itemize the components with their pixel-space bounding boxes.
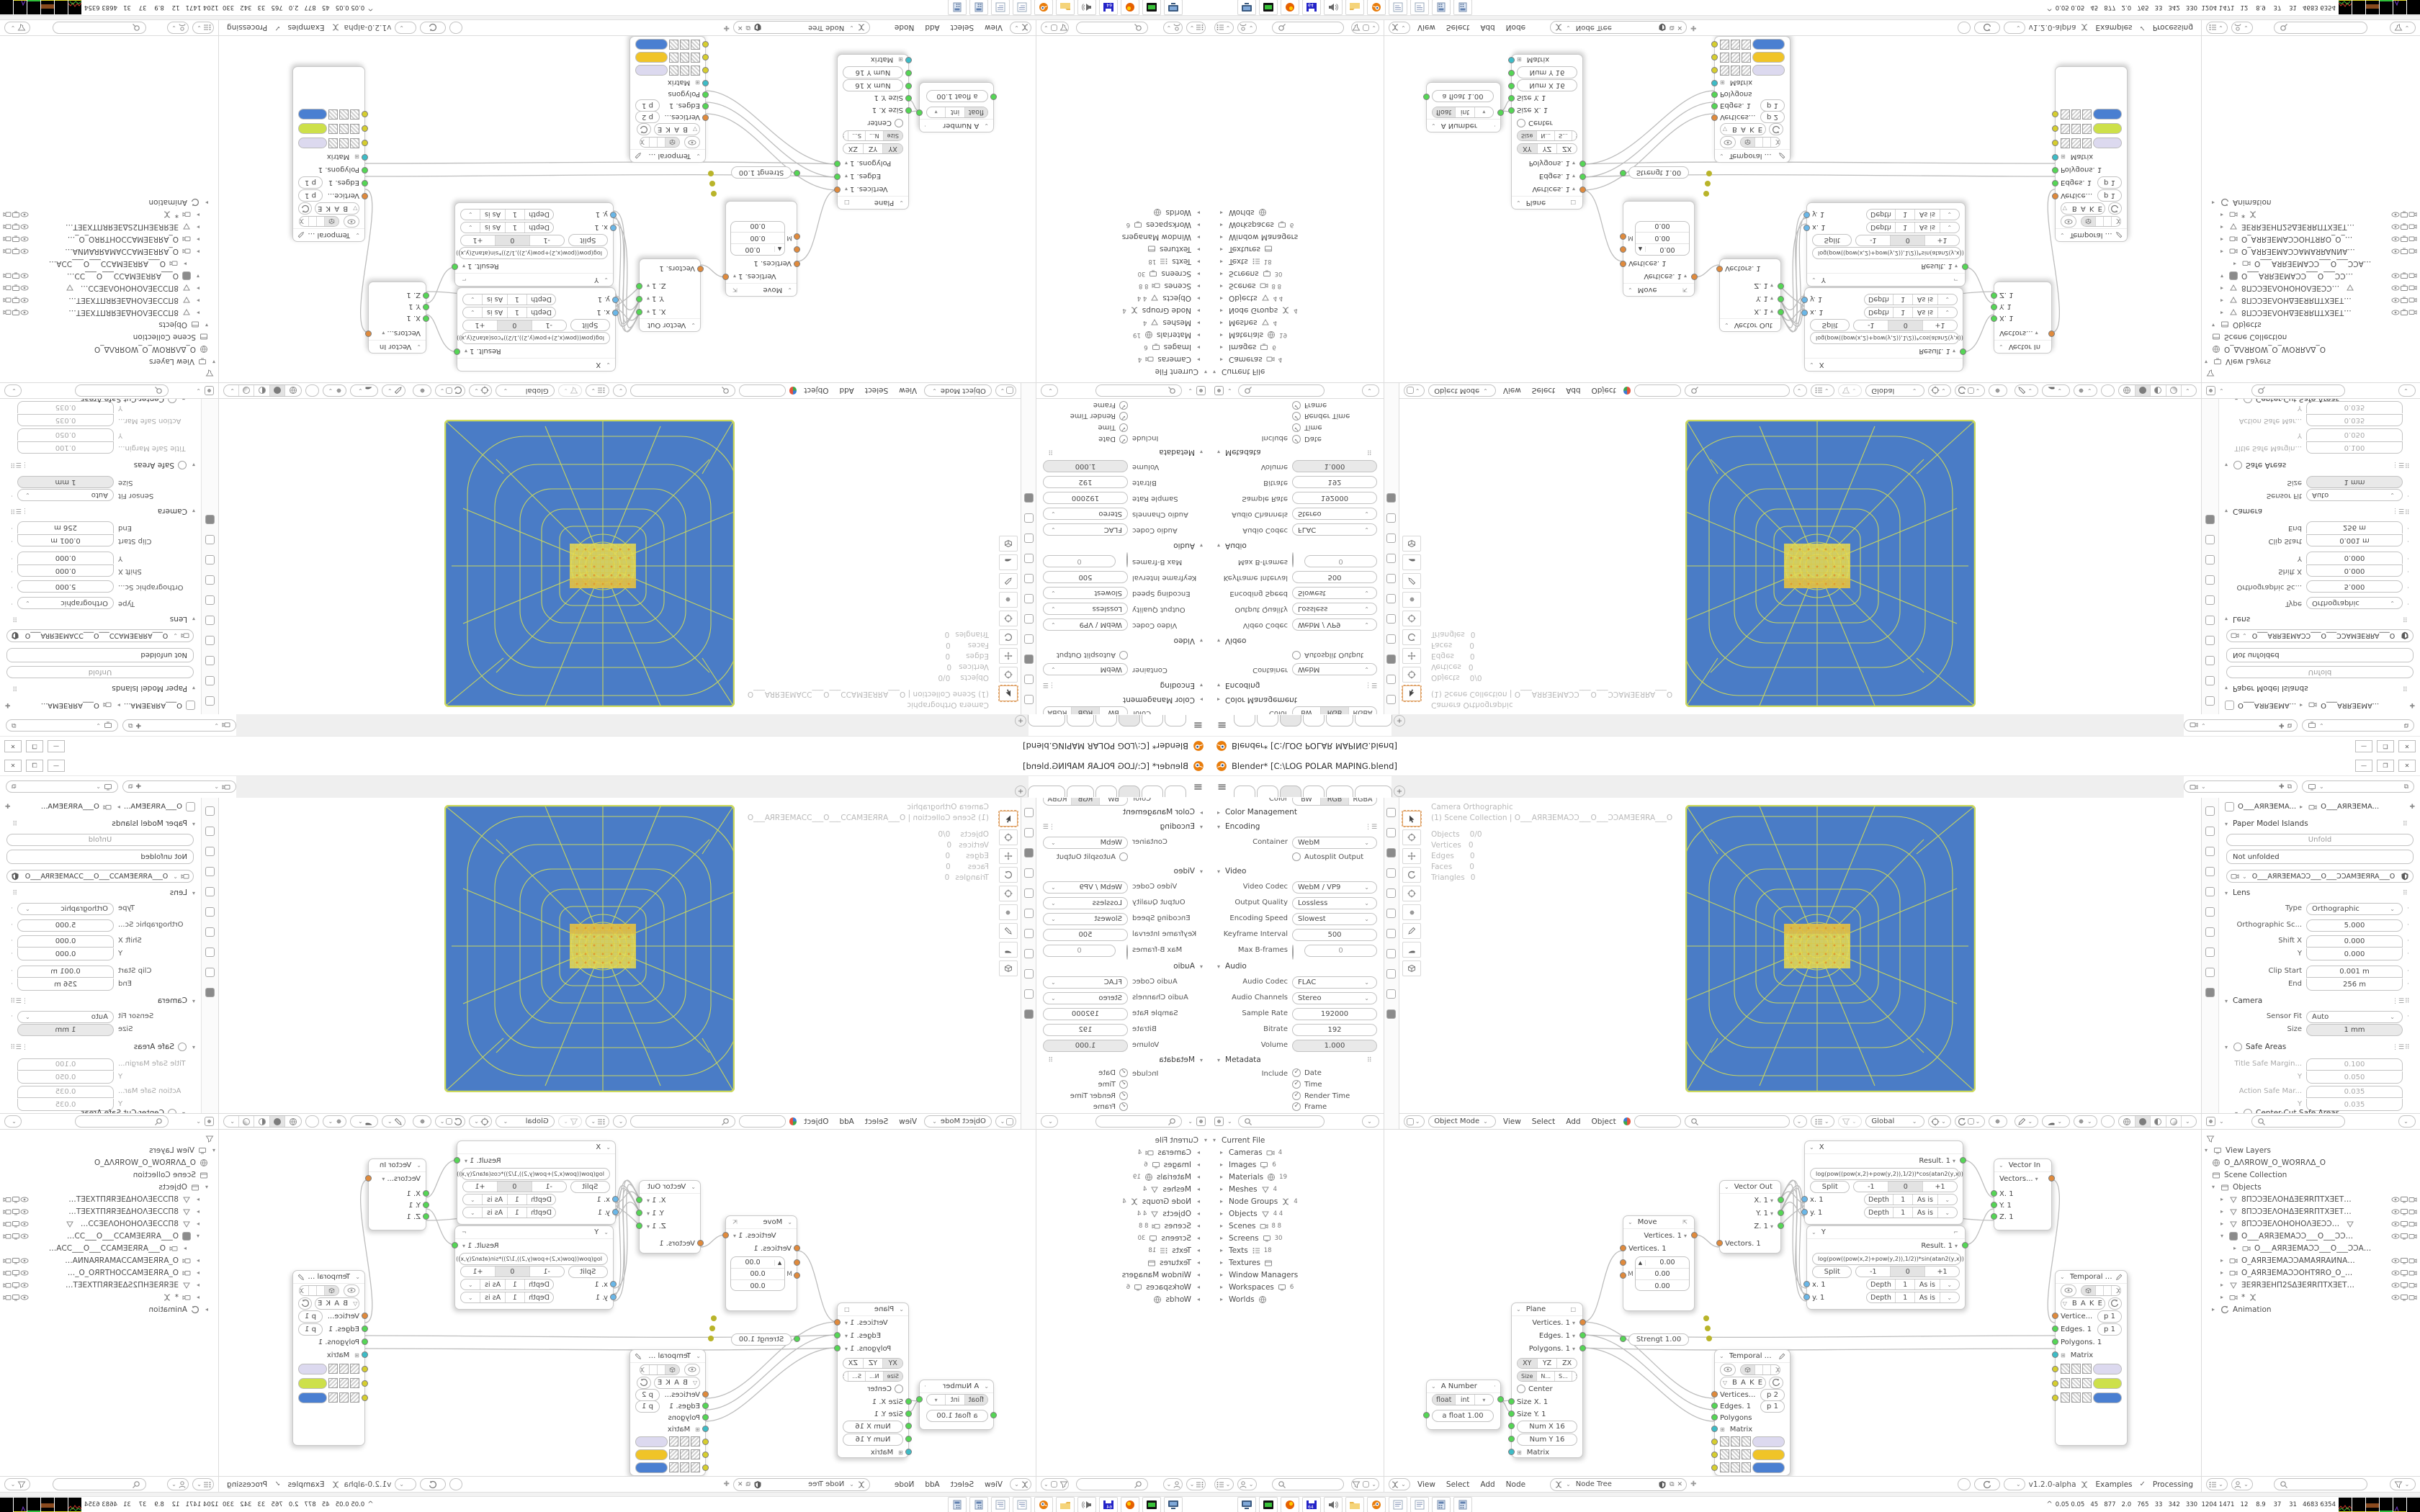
workspace-tab[interactable] [1234,786,1255,797]
panel-lens[interactable]: ▾Lens [2225,615,2250,624]
tree-textures[interactable]: ▸Textures [1213,243,1381,256]
node-plane[interactable]: ⌄Plane□ Vertices. 1▾ Edges. 1▾ Polygons.… [1511,54,1583,210]
formula-y-result-socket[interactable] [452,264,458,270]
plane-num-y-field[interactable]: Num Y 16 [843,67,903,79]
move-vector-field[interactable]: ▲0.00 0.00 0.00 [1635,1256,1690,1291]
vector-out-x-socket[interactable] [636,1197,642,1203]
new-tree-icon[interactable]: ⧉ [1670,1481,1674,1488]
split-button[interactable]: Split [568,1266,608,1278]
tab-scene-icon[interactable] [1024,614,1034,624]
transform-orientation-select[interactable]: Global⌄ [496,1115,555,1128]
number-out-socket[interactable] [916,1396,923,1403]
tree-object-row[interactable]: ▸8ΠƆƆƎEΛOHΔƎEЯRΠTXƎETOTƎEXTΠЯ8 [2205,307,2417,319]
properties-search[interactable] [1238,1115,1325,1128]
edge-color-socket[interactable] [362,125,368,132]
workspace-tab-active[interactable] [1280,786,1301,797]
breadcrumb-object[interactable]: O___AЯRƎEMA... [124,803,182,811]
snapping-button[interactable]: ⌄ [1928,384,1950,397]
menu-add[interactable]: Add [1562,387,1584,395]
plane-edges-out-socket[interactable] [834,174,841,180]
close-button[interactable]: ✕ [4,740,22,752]
fake-user-shield-icon[interactable] [2401,631,2409,640]
tab-tool-icon[interactable] [2205,806,2215,816]
action-safe-x-field[interactable]: 0.035 [17,1086,114,1098]
face-color-socket[interactable] [702,1464,709,1471]
taskbar-app-floppy-64[interactable]: 64 [1302,1497,1321,1512]
row-toggles[interactable] [3,1293,29,1302]
tree-window-managers[interactable]: ▸Window Managers [1213,231,1381,243]
menu-view[interactable]: View [981,1480,1006,1489]
taskbar-app-folder[interactable] [1056,1497,1075,1512]
vertex-color-swatch[interactable] [298,138,327,149]
menu-node[interactable]: Node [1502,1480,1529,1489]
row-toggles[interactable] [2391,223,2417,232]
tool-annotate[interactable] [999,923,1018,939]
fake-user-shield-icon[interactable] [753,24,762,32]
sensor-size-field[interactable]: 1 mm [17,1024,114,1036]
vector-in-y-socket[interactable] [1991,1202,1997,1208]
tree-object-row[interactable]: ▸O_AЯRƎEMAƆƆOHTЯRO_O_OЯRTHƆƆƆ [2205,1266,2417,1279]
tab-object-icon[interactable] [1024,929,1034,938]
plane-matrix-socket[interactable] [905,1449,912,1455]
workspace-tab[interactable] [1165,786,1186,797]
tree-scene-collection[interactable]: Scene Collection [3,331,215,343]
tab-view-layer-icon[interactable] [1024,634,1034,644]
processing-toggle[interactable]: Processing [223,24,271,32]
outliner-type-button[interactable]: ⌄ [192,22,214,34]
tab-view-layer-icon[interactable] [205,867,215,876]
include-frame-checkbox[interactable] [1119,1102,1128,1111]
vector-in-out-socket[interactable] [2048,330,2055,337]
formula-y-expression[interactable]: log(pow((pow(x,2)+pow(y,2)),1/2))*sin(at… [1812,1253,1961,1265]
tree-world[interactable]: O_ΔΛЯROW_O_WOЯRΛΔ_O [3,343,215,356]
audio-codec-select[interactable]: FLAC⌄ [1043,523,1128,536]
vertex-color-swatch[interactable] [1752,1436,1785,1447]
tree-animation[interactable]: ▸Animation [2205,1303,2417,1315]
row-toggles[interactable] [3,248,29,256]
panel-video[interactable]: ▾Video [1174,636,1203,645]
shading-wireframe-icon[interactable] [284,1116,301,1127]
clip-end-field[interactable]: 256 m [2306,978,2403,991]
animate-dot[interactable]: · [2407,537,2409,544]
unlink-tree-icon[interactable]: ✕ [1677,24,1683,32]
menu-hamburger-icon[interactable]: ≡ [1193,780,1203,793]
tree-meshes[interactable]: ▸Meshes4 [1039,1183,1207,1195]
title-safe-y-field[interactable]: 0.050 [17,428,114,441]
editor-type-icon[interactable] [2206,386,2215,395]
shading-material-icon[interactable] [2151,1116,2166,1127]
panel-drag-icon[interactable]: ⠿ [2405,998,2410,1005]
tab-camera-data-icon-active[interactable] [205,988,215,997]
tool-add-cube[interactable] [999,960,1018,976]
tree-object-row[interactable]: ▸8ΠƆƆƎEΛOHΔƎEЯRΠTXƎETOTƎEXTΠЯ8 [3,294,215,307]
unfold-button[interactable]: Unfold [2226,834,2414,846]
vector-out-in-socket[interactable] [1716,1240,1723,1246]
formula-x-expression[interactable]: log(pow((pow(x,2)+pow(y,2)),1/2))*cos(at… [1810,1168,1959,1180]
new-scene-icon[interactable]: ⧉ [2287,783,2292,791]
vertex-color-swatch[interactable] [1752,66,1785,76]
tree-screens[interactable]: ▸Screens30 [1213,268,1381,280]
max-b-checkbox[interactable] [1292,552,1294,567]
row-toggles[interactable] [3,1281,29,1290]
tree-scene-collection[interactable]: Scene Collection [2205,1169,2417,1181]
new-scene-icon[interactable]: ⧉ [2287,722,2292,729]
node-vector-out[interactable]: ⌄Vector Out X. 1▾ Y. 1▾ Z. 1▾ Vectors. 1 [639,258,701,332]
viewer-vertices-socket[interactable] [1711,1391,1718,1398]
tab-tool-icon[interactable] [1386,808,1396,817]
properties-search[interactable] [1095,384,1182,397]
tool-measure[interactable] [1402,554,1421,570]
breadcrumb-object[interactable]: O___AЯRƎEMA... [2238,803,2296,811]
tree-object-data-row[interactable]: ▸O___AЯRƎEMAƆƆ___O___ƆƆAMƎE [2205,258,2417,270]
plane-size-x-socket[interactable] [905,107,912,114]
tab-world-icon[interactable] [1024,909,1034,918]
vertex-color-socket[interactable] [702,67,709,73]
tree-current-file[interactable]: ▾Current File [1213,1134,1381,1146]
autosplit-row[interactable]: Autosplit Output [1292,852,1363,861]
tree-object-row[interactable]: ▸O_AЯRƎEMAƆƆAMAЯRAИNAΠ__O_ΠA [3,1254,215,1266]
plane-size-y-socket[interactable] [905,1410,912,1417]
properties-options-button[interactable]: ⌄ [1041,1115,1058,1128]
panel-audio[interactable]: ▾Audio [1173,962,1203,971]
safe-areas-checkbox[interactable] [2233,1043,2242,1051]
tool-annotate[interactable] [1402,573,1421,589]
proportional-edit-button[interactable]: ⌄ [435,1115,466,1128]
plane-num-x-socket[interactable] [1508,83,1515,89]
shading-wireframe-icon[interactable] [284,385,301,396]
shading-solid-icon[interactable] [269,1116,284,1127]
tab-physics-icon[interactable] [1024,534,1034,543]
tree-scenes[interactable]: ▸Scenes8 8 [1039,280,1207,292]
tree-object-row[interactable]: ▸8ΠƆƆƎEΛOHOHOΛƎEƆƆΠ8 [3,1218,215,1230]
outliner-filter-button[interactable]: ⌄ [1351,1478,1379,1490]
panel-paper-model[interactable]: ▾Paper Model Islands [112,684,195,693]
animate-dot[interactable]: · [2407,937,2409,945]
reroute-dot[interactable] [1706,171,1712,176]
include-frame-checkbox[interactable] [1292,401,1301,410]
system-monitor-graphs[interactable] [0,1,81,15]
taskbar-app-calculator-1[interactable] [1432,1497,1451,1512]
preset-menu-icon[interactable]: ⋮☰ [2392,998,2404,1005]
row-toggles[interactable] [3,223,29,232]
node-formula-y[interactable]: ⌄Y⌐ Result. 1▾ log(pow((pow(x,2)+pow(y,2… [454,202,614,287]
tab-object-data-icon-active[interactable] [1386,493,1396,503]
preset-menu-icon[interactable]: ⋮☰ [2392,507,2404,514]
tree-current-file[interactable]: ▾Current File [1213,366,1381,378]
face-color-socket[interactable] [2052,111,2058,117]
tool-scale[interactable] [999,611,1018,626]
mode-select[interactable]: Object Mode⌄ [1428,1115,1496,1128]
move-vertices-out-socket[interactable] [722,1232,729,1238]
vertex-color-swatch[interactable] [2093,1364,2122,1374]
tool-add-cube[interactable] [999,536,1018,552]
render-preview-toggle[interactable] [2101,384,2115,397]
center-cut-checkbox[interactable] [168,399,176,403]
tree-meshes[interactable]: ▸Meshes4 [1213,1183,1381,1195]
plane-size-y-socket[interactable] [1508,95,1515,102]
tree-animation[interactable]: ▸Animation [3,1303,215,1315]
node-temporal-viewer-2[interactable]: ⌄Temporal Viewer ▽B A K E Vertices...p 2… [1714,36,1791,163]
preset-menu-icon[interactable]: ⋮☰ [16,1044,28,1051]
row-toggles[interactable] [2391,1256,2417,1265]
parent-tree-toggle[interactable] [1958,1478,1971,1490]
row-toggles[interactable] [2391,1293,2417,1302]
camera-datablock-field[interactable]: ⌄ O___AЯRƎEMAƆƆ___O___ƆƆAMƎEЯRA___O [6,870,194,883]
reroute-dot[interactable] [708,1336,714,1341]
animate-dot[interactable]: · [11,922,13,929]
plane-center-checkbox[interactable] [1517,119,1525,127]
move-vertices-in-socket[interactable] [1620,261,1626,267]
properties-search[interactable] [2251,384,2345,397]
menu-select[interactable]: Select [947,24,977,32]
formula-y-expression[interactable]: log(pow((pow(x,2)+pow(y,2)),1/2))*sin(at… [1812,248,1961,260]
panel-drag-icon[interactable]: ⠿ [2403,684,2408,691]
plane-num-y-socket[interactable] [1508,70,1515,76]
shading-wireframe-icon[interactable] [2119,1116,2136,1127]
pin-scene-icon[interactable]: ✚ [2279,783,2285,791]
reroute-dot[interactable] [1705,1326,1711,1331]
edge-color-swatch[interactable] [2093,124,2122,135]
panel-drag-icon[interactable]: ⠿ [10,998,15,1005]
breadcrumb-data[interactable]: O___AЯRƎEMA... [41,701,99,709]
include-frame-checkbox[interactable] [1119,401,1128,410]
panel-drag-icon[interactable]: ⠿ [2403,615,2408,622]
outliner-search[interactable] [1272,22,1344,34]
vector-in-out-socket[interactable] [365,330,372,337]
panel-lens[interactable]: ▾Lens [170,615,195,624]
tab-object-data-icon-active[interactable] [1386,1009,1396,1019]
max-b-field[interactable]: 0 [1043,555,1116,567]
tool-rotate[interactable] [1402,867,1421,883]
node-formula-x[interactable]: ⌄X Result. 1▾ log(pow((pow(x,2)+pow(y,2)… [1804,1140,1963,1225]
panel-camera[interactable]: ▾Camera [2225,507,2262,516]
vector-out-y-socket[interactable] [636,1210,642,1216]
camera-datablock-field[interactable]: ⌄ O___AЯRƎEMAƆƆ___O___ƆƆAMƎEЯRA___O [2226,629,2414,642]
lens-type-select[interactable]: Orthographic⌄ [17,597,114,609]
sensor-fit-select[interactable]: Auto⌄ [2306,489,2403,501]
tree-images[interactable]: ▸Images6 [1213,1158,1381,1171]
node-formula-y[interactable]: ⌄Y⌐ Result. 1▾ log(pow((pow(x,2)+pow(y,2… [1806,202,1966,287]
panel-lens[interactable]: ▾Lens [2225,888,2250,897]
taskbar-app-calculator-2[interactable] [1453,1497,1472,1512]
examples-menu[interactable]: Examples [2092,24,2136,32]
move-vector-socket-1[interactable] [794,246,800,253]
plane-num-y-field[interactable]: Num Y 16 [1517,67,1577,79]
node-temporal-viewer-1[interactable]: ⌄Temporal Viewer ▽B A K E Vertice...p 1 … [292,1270,365,1446]
vector-in-z-socket[interactable] [423,1213,429,1220]
taskbar-app-notepad-1[interactable] [1013,1497,1031,1512]
plane-polygons-out-socket[interactable] [834,161,841,167]
tab-view-layer-icon[interactable] [1386,868,1396,878]
tree-object-data-row[interactable]: ▸O___AЯRƎEMAƆƆ___O___ƆƆAMƎE [3,258,215,270]
formula-y-x-socket[interactable] [1803,225,1810,231]
video-codec-select[interactable]: WebM / VP9⌄ [1043,881,1128,894]
scene-selector[interactable]: ⌄ ✚ ⧉ [2184,719,2298,732]
taskbar-app-recorder[interactable] [1259,0,1278,16]
taskbar-app-notepad-2[interactable] [1410,1497,1429,1512]
animate-dot[interactable]: · [2407,554,2409,562]
tool-cursor[interactable] [1402,667,1421,683]
animate-dot[interactable]: · [11,968,13,975]
maximize-button[interactable]: ❐ [2377,760,2394,772]
filter-funnel-button[interactable]: ⌄ [558,384,582,397]
menu-hamburger-icon[interactable]: ≡ [1217,719,1227,732]
display-mode-button[interactable]: ⌄ [1163,1478,1183,1490]
tab-view-layer-icon[interactable] [1024,868,1034,878]
tray-expand-icon[interactable]: ^ [2046,1500,2052,1508]
plane-num-y-socket[interactable] [905,1436,912,1442]
tab-scene-icon[interactable] [205,616,215,625]
formula-x-expression[interactable]: log(pow((pow(x,2)+pow(y,2)),1/2))*cos(at… [461,1168,610,1180]
panel-encoding[interactable]: ▾Encoding [1160,822,1203,831]
face-color-socket[interactable] [2052,1395,2058,1401]
viewport-search[interactable] [1685,384,1790,397]
tree-workspaces[interactable]: ▸Workspaces6 [1039,219,1207,231]
audio-codec-select[interactable]: FLAC⌄ [1292,976,1377,989]
display-mode-button[interactable]: ⌄ [1237,1478,1257,1490]
viewport-search[interactable] [1685,1115,1790,1128]
taskbar-app-volume[interactable] [1324,0,1343,16]
vector-out-z-socket[interactable] [636,1223,642,1229]
panel-camera[interactable]: ▾Camera [158,507,195,516]
outliner-filter-button[interactable]: ⌄ [1041,22,1069,34]
new-scene-icon[interactable]: ⧉ [128,783,133,791]
tree-object-row[interactable]: ▾O___AЯRƎEMAƆƆ___O___ƆƆAMƎEЯRA [2205,270,2417,282]
menu-select[interactable]: Select [1443,1480,1473,1489]
edge-color-socket[interactable] [2052,125,2058,132]
number-out-socket[interactable] [1497,109,1504,116]
node-tree-selector[interactable]: ⌄ Node Tree ⧉ ✕ [733,22,870,35]
panel-metadata[interactable]: ▾Metadata [1159,1056,1203,1064]
log-polar-mesh-object[interactable] [444,420,735,707]
tab-constraints-icon[interactable] [1386,513,1396,523]
viewer-polygons-socket[interactable] [2052,167,2058,174]
taskbar-app-folder[interactable] [1056,0,1075,16]
plane-size-x-socket[interactable] [1508,1398,1515,1405]
tab-render-icon[interactable] [2205,676,2215,685]
vertex-color-socket[interactable] [362,1366,368,1372]
tree-texts[interactable]: ▸Texts18 [1213,256,1381,268]
snapping-button[interactable]: ⌄ [1928,1115,1950,1128]
shift-x-field[interactable]: 0.000 [2306,564,2403,577]
animate-dot[interactable]: · [11,600,13,607]
tab-object-data-icon-active[interactable] [1024,1009,1034,1019]
move-vector-socket-2[interactable] [1620,233,1626,240]
node-vector-in[interactable]: ⌄Vector In Vectors...▾ X. 1 Y. 1 Z. 1 [368,282,426,354]
bake-button[interactable]: ▽B A K E [2061,1297,2105,1310]
node-tree-selector[interactable]: ⌄ Node Tree ⧉ ✕ [1550,1478,1687,1491]
workspace-tab[interactable] [1326,715,1353,726]
formula-y-y-socket[interactable] [610,212,617,218]
bake-button[interactable]: ▽B A K E [315,203,359,215]
viewer-matrix-socket[interactable] [1711,80,1718,86]
plane-size-x-socket[interactable] [1508,107,1515,114]
tree-textures[interactable]: ▸Textures [1039,1256,1207,1269]
tool-measure[interactable] [999,554,1018,570]
node-temporal-viewer-1[interactable]: ⌄Temporal Viewer ▽B A K E Vertice...p 1 … [2055,1270,2128,1446]
taskbar-app-notepad-1[interactable] [1013,0,1031,16]
taskbar-app-folder[interactable] [1345,0,1364,16]
formula-y-x-socket[interactable] [610,1281,617,1287]
filter-list-button[interactable]: ⌄ [586,1115,609,1128]
preset-menu-icon[interactable]: ⋮☰ [2392,461,2404,468]
safe-areas-checkbox[interactable] [178,461,187,469]
move-vector-socket-2[interactable] [794,1272,800,1279]
clip-start-field[interactable]: 0.001 m [2306,534,2403,546]
outliner-type-button[interactable]: ⌄ [1186,22,1206,34]
face-color-swatch[interactable] [298,1392,327,1403]
animate-dot[interactable]: · [11,950,13,958]
tool-scale[interactable] [1402,886,1421,901]
fake-user-shield-icon[interactable] [11,872,19,881]
plane-polygons-out-socket[interactable] [1579,161,1586,167]
preset-menu-icon[interactable]: ⋮☰ [16,461,28,468]
unfold-button[interactable]: Unfold [2226,666,2414,678]
menu-select[interactable]: Select [947,1480,977,1489]
formula-x-x-socket[interactable] [1801,1196,1808,1202]
container-select[interactable]: WebM⌄ [1292,663,1377,675]
edge-color-socket[interactable] [1711,1452,1718,1458]
plane-num-y-socket[interactable] [1508,1436,1515,1442]
tab-scene-icon[interactable] [1386,888,1396,898]
preset-menu-icon[interactable]: ⋮☰ [1043,824,1055,831]
move-strength-field[interactable]: Strengt 1.00 [1628,167,1689,179]
outliner-type-button[interactable]: ⌄ [2206,22,2228,34]
viewport-search[interactable] [630,1115,735,1128]
properties-search[interactable] [2251,1115,2345,1128]
split-button[interactable]: Split [1810,320,1850,332]
safe-areas-checkbox[interactable] [2233,461,2242,469]
viewer-vertices-socket[interactable] [2052,1313,2058,1319]
include-time-checkbox[interactable] [1119,423,1128,432]
examples-menu[interactable]: Examples [284,1480,328,1489]
animate-dot[interactable]: · [2407,968,2409,975]
taskbar-app-calculator-2[interactable] [948,1497,967,1512]
row-toggles[interactable] [3,235,29,244]
tree-object-row[interactable]: ▸8ΠƆƆƎEΛOHΔƎEЯRΠTXƎETOTƎEXTΠЯ8 [3,307,215,319]
row-toggles[interactable] [2391,1207,2417,1216]
tab-modifiers-icon[interactable] [1386,949,1396,958]
tab-constraints-icon[interactable] [1024,989,1034,999]
plane-edges-out-socket[interactable] [1579,174,1586,180]
autosplit-checkbox[interactable] [1292,651,1301,660]
pin-tree-icon[interactable]: ✚ [724,1480,730,1488]
filter-list-button[interactable]: ⌄ [1811,1115,1834,1128]
taskbar-app-blender[interactable] [1367,0,1386,16]
title-safe-y-field[interactable]: 0.050 [2306,428,2403,441]
node-vector-out[interactable]: ⌄Vector Out X. 1▾ Y. 1▾ Z. 1▾ Vectors. 1 [639,1180,701,1254]
plane-num-x-field[interactable]: Num X 16 [843,80,903,92]
panel-center-cut[interactable]: ▾Center-Cut Safe Areas [81,399,185,403]
pin-scene-icon[interactable]: ✚ [2279,722,2285,729]
node-a-number[interactable]: ⌄A Number· floatint▾ a float 1.00 [1426,1380,1501,1430]
tab-view-layer-icon[interactable] [205,636,215,645]
bitrate-field[interactable]: 192 [1043,1024,1128,1036]
clip-end-field[interactable]: 256 m [17,978,114,991]
encoding-speed-select[interactable]: Slowest⌄ [1043,587,1128,599]
plane-matrix-socket[interactable] [905,57,912,63]
panel-center-cut[interactable]: ▾Center-Cut Safe Areas [2235,399,2339,403]
tree-window-managers[interactable]: ▸Window Managers [1039,231,1207,243]
color-mode-segment[interactable]: BW RGB RGBA [1043,798,1128,806]
move-vector-socket-1[interactable] [1620,1259,1626,1266]
formula-x-x-socket[interactable] [612,1196,619,1202]
editor-type-icon[interactable] [1196,1117,1206,1126]
animate-dot[interactable]: · [11,524,13,531]
menu-add[interactable]: Add [921,1480,943,1489]
audio-codec-select[interactable]: FLAC⌄ [1292,523,1377,536]
lens-type-select[interactable]: Orthographic⌄ [2306,903,2403,915]
